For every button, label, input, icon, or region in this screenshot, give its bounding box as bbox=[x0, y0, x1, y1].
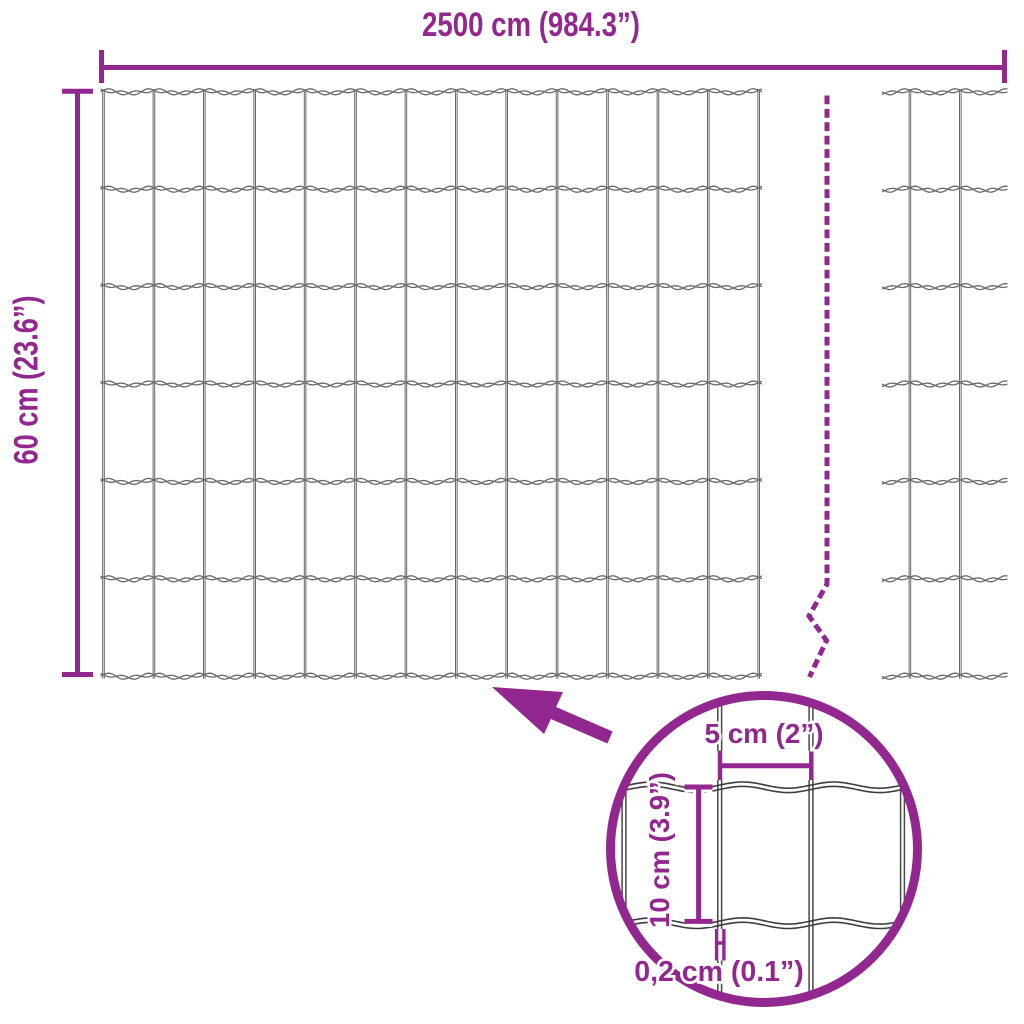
svg-text:5 cm (2”): 5 cm (2”) bbox=[705, 718, 824, 749]
svg-text:2500 cm (984.3”): 2500 cm (984.3”) bbox=[422, 6, 640, 44]
svg-text:0,2 cm (0.1”): 0,2 cm (0.1”) bbox=[634, 956, 804, 988]
svg-text:60 cm (23.6”): 60 cm (23.6”) bbox=[8, 296, 46, 465]
svg-text:10 cm (3.9”): 10 cm (3.9”) bbox=[644, 772, 675, 928]
